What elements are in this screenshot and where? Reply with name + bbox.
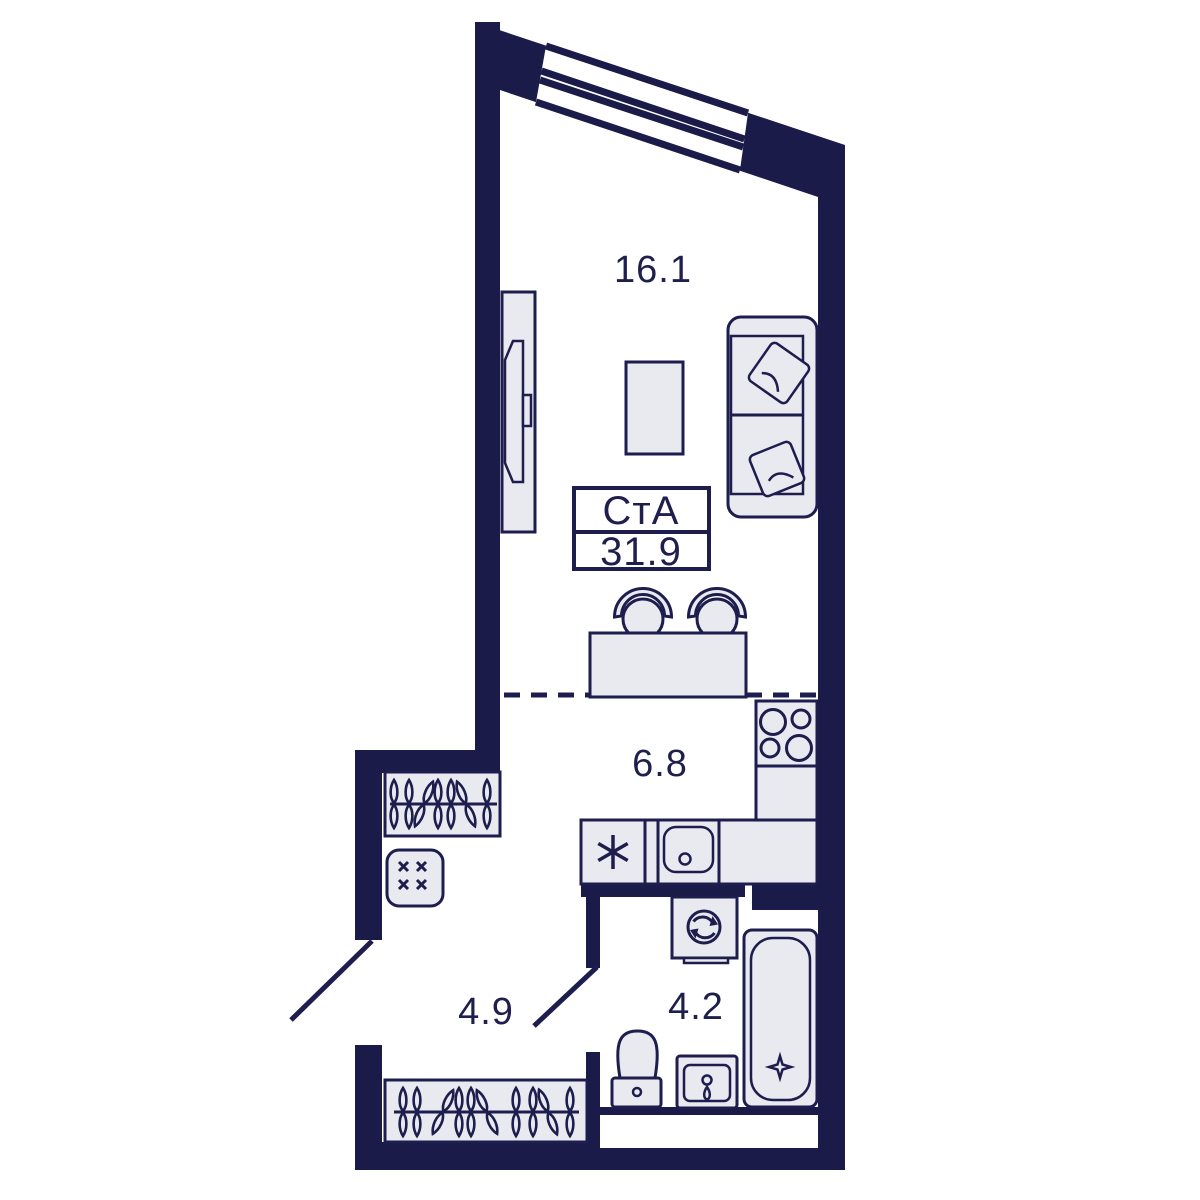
wall-left-upper <box>475 22 500 773</box>
coffee-table <box>626 362 683 454</box>
unit-total-area: 31.9 <box>600 530 682 574</box>
washing-machine-foot <box>684 958 728 963</box>
wall-right <box>818 145 845 1170</box>
toilet-icon <box>612 1031 661 1107</box>
kitchen-area-label: 6.8 <box>632 743 688 785</box>
shoe-bench <box>387 850 443 906</box>
toilet-button <box>633 1088 641 1096</box>
wardrobe <box>385 1080 587 1142</box>
sink-basin <box>664 827 713 872</box>
kitchen-sink-icon <box>658 820 719 884</box>
counter-divider <box>645 820 658 884</box>
stove-icon <box>756 701 817 766</box>
tv-stand <box>523 395 531 426</box>
bathtub-icon <box>744 930 817 1107</box>
wall-bottom <box>355 1148 845 1170</box>
toilet-bowl <box>618 1031 658 1078</box>
unit-info-box: СтА 31.9 <box>574 488 709 574</box>
wall-kitchen-bath-right <box>752 885 818 910</box>
bathroom-area-label: 4.2 <box>668 986 724 1028</box>
bar-table <box>590 633 746 697</box>
living-room-area-label: 16.1 <box>614 249 692 291</box>
sink-drain <box>680 854 691 865</box>
floor-plan: 16.1 6.8 4.9 4.2 СтА 31.9 <box>0 0 1200 1200</box>
floor-plan-page: 16.1 6.8 4.9 4.2 СтА 31.9 <box>0 0 1200 1200</box>
washing-machine-icon <box>672 897 737 963</box>
washbasin-faucet <box>703 1076 712 1085</box>
wall-bath-partition-upper <box>586 897 600 968</box>
kitchen-counter <box>581 701 817 884</box>
unit-type-label: СтА <box>603 489 680 533</box>
washbasin-icon <box>677 1056 737 1108</box>
fridge-icon <box>581 820 645 884</box>
entrance-door-swing <box>291 941 372 1020</box>
coat-rack <box>385 772 500 836</box>
tv-icon <box>505 341 523 482</box>
wall-left-middle <box>355 750 382 940</box>
bar-stool <box>615 589 672 640</box>
sofa <box>728 317 817 517</box>
bar-stool <box>689 589 746 640</box>
hallway-area-label: 4.9 <box>458 991 514 1033</box>
window-icon <box>536 46 748 170</box>
wall-kitchen-bath-left <box>581 885 745 897</box>
tv-console <box>502 292 535 532</box>
bathroom-door-swing <box>534 967 597 1026</box>
washbasin-drop <box>704 1087 710 1100</box>
